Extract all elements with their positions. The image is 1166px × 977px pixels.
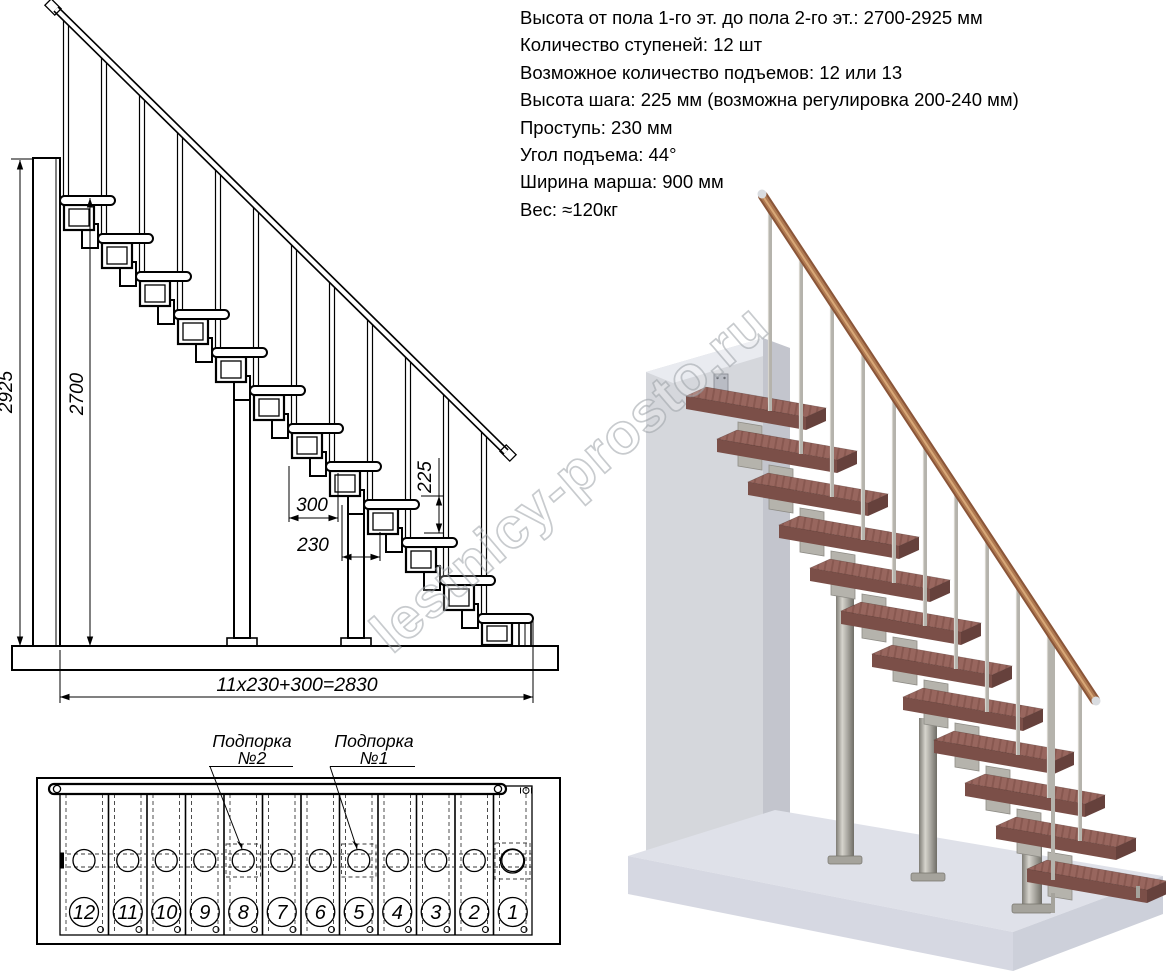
elevation-baluster xyxy=(368,320,373,500)
plan-step-number: 12 xyxy=(73,902,95,924)
elevation-baluster xyxy=(330,283,335,462)
dim-total-height: 2925 xyxy=(0,370,17,414)
elevation-support-column-2 xyxy=(234,400,250,638)
elevation-baluster xyxy=(406,357,411,538)
callout-2-number: №2 xyxy=(238,748,267,768)
plan-drawing: 121110987654321 Подпорка №2 Подпорка xyxy=(37,731,560,944)
column-support-1-foot xyxy=(911,873,945,881)
elevation-tread xyxy=(250,386,305,395)
plan-step-number: 8 xyxy=(238,902,249,924)
spec-line: Ширина марша: 900 мм xyxy=(520,168,1019,195)
elevation-tread xyxy=(212,348,267,357)
elevation-tread xyxy=(174,310,229,319)
plan-step-number: 6 xyxy=(315,902,327,924)
column-support-2 xyxy=(836,590,854,860)
dim-rise: 225 xyxy=(415,461,436,494)
elevation-dimensions: 2925 2700 300 230 xyxy=(0,159,533,703)
elevation-tread xyxy=(478,614,533,623)
callout-1-number: №1 xyxy=(360,748,389,768)
handrail-bottom-tip xyxy=(1092,697,1101,706)
elevation-tread xyxy=(364,500,419,509)
elevation-tread xyxy=(136,272,191,281)
elevation-support-1-foot xyxy=(341,638,371,646)
elevation-tread xyxy=(326,462,381,471)
dim-stair-height: 2700 xyxy=(67,372,88,416)
spec-line: Количество ступеней: 12 шт xyxy=(520,31,1019,58)
spec-line: Высота шага: 225 мм (возможна регулировк… xyxy=(520,86,1019,113)
dim-total-run: 11x230+300=2830 xyxy=(216,674,377,696)
elevation-baluster xyxy=(178,133,183,310)
plan-centerline-tick xyxy=(60,853,64,869)
spec-line: Проступь: 230 мм xyxy=(520,114,1019,141)
plan-step-number: 9 xyxy=(199,902,210,924)
column-support-2-foot xyxy=(828,856,862,864)
elevation-floor-band xyxy=(12,646,558,670)
plan-step-number: 3 xyxy=(430,902,441,924)
elevation-baluster xyxy=(254,208,259,386)
plan-step-number: 2 xyxy=(468,902,480,924)
elevation-tread xyxy=(60,196,115,205)
column-step1-foot xyxy=(1012,904,1052,913)
plan-step-number: 1 xyxy=(507,902,518,924)
dim-tread-run: 230 xyxy=(296,535,329,556)
dim-top-run: 300 xyxy=(296,495,328,516)
spec-line: Вес: ≈120кг xyxy=(520,196,1019,223)
elevation-tread xyxy=(288,424,343,433)
spec-line: Возможное количество подъемов: 12 или 13 xyxy=(520,59,1019,86)
plan-step-number: 11 xyxy=(117,902,138,924)
plan-handrail-bar xyxy=(49,784,506,794)
elevation-baluster xyxy=(216,170,221,348)
elevation-support-2-foot xyxy=(227,638,257,646)
elevation-tread xyxy=(98,234,153,243)
specs-panel: Высота от пола 1-го эт. до пола 2-го эт.… xyxy=(520,4,1019,223)
spec-line: Высота от пола 1-го эт. до пола 2-го эт.… xyxy=(520,4,1019,31)
elevation-baluster xyxy=(102,58,107,234)
elevation-baluster xyxy=(292,245,297,424)
plan-step-number: 10 xyxy=(155,902,177,924)
spec-line: Угол подъема: 44° xyxy=(520,141,1019,168)
page: 2925 2700 300 230 xyxy=(0,0,1166,977)
render-3d xyxy=(628,190,1166,972)
plan-step-number: 5 xyxy=(353,902,365,924)
elevation-baluster xyxy=(140,96,145,272)
elevation-baluster xyxy=(64,21,69,196)
elevation-balusters xyxy=(64,21,487,614)
plan-step-number: 4 xyxy=(392,902,403,924)
plan-step-number: 7 xyxy=(276,902,288,924)
